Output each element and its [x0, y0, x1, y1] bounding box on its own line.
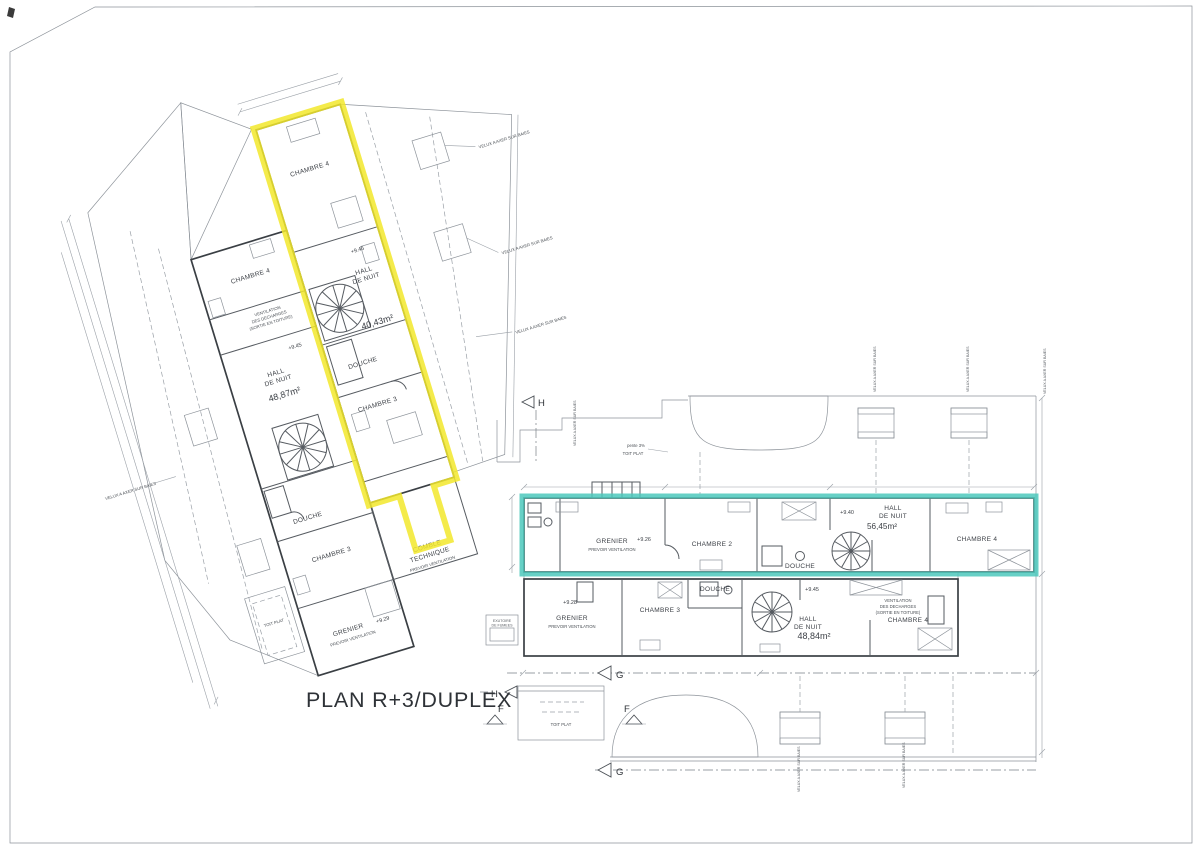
- grenier-bottom-label: GRENIER: [556, 615, 588, 622]
- hall-bottom-level: +9.45: [805, 587, 819, 593]
- grenier-a-level: +9.29: [376, 615, 391, 625]
- left-wing-plan: CHAMBRE 4 VENTILATION DES DECHARGES (SOR…: [1, 8, 664, 720]
- unit-b-spiral-stair: [310, 278, 370, 338]
- strip-bottom-x-box-3: [918, 628, 952, 650]
- level-a: +9.45: [288, 342, 303, 352]
- toit-plat-box-left: TOIT PLAT: [245, 587, 305, 664]
- page-title: PLAN R+3/DUPLEX: [306, 688, 512, 712]
- grenier-top-level: +9.26: [637, 537, 651, 543]
- exutoire-line2: DE FUMEES: [492, 624, 514, 628]
- roof-velux-windows: [127, 132, 548, 580]
- marker-g-bottom-label: G: [616, 767, 623, 778]
- chambre4-top-label: CHAMBRE 4: [957, 536, 998, 543]
- pente-label: pente 3%: [627, 443, 645, 448]
- marker-g-top-label: G: [616, 670, 623, 681]
- strip-bottom-spiral-stair: [752, 592, 792, 632]
- strip-bottom-x-box-1: [658, 582, 682, 598]
- hall-top-line2: DE NUIT: [879, 513, 907, 520]
- room-label-chambre4-b: CHAMBRE 4: [289, 160, 330, 179]
- grenier-bottom-level: +9.28: [563, 600, 577, 606]
- marker-f-right-label: F: [624, 704, 630, 715]
- unit-a-spiral-stair: [273, 417, 333, 477]
- velux-note-4: VELUX A AXER SUR BAIES: [104, 481, 156, 501]
- strip-top-x-box-2: [988, 550, 1030, 570]
- hall-a-area: 48,87m²: [267, 385, 302, 404]
- room-label-chambre3-b: CHAMBRE 3: [357, 396, 398, 415]
- velux-note-1: VELUX A AXER SUR BAIES: [478, 129, 530, 149]
- hall-bottom-area: 48,84m²: [797, 631, 830, 641]
- strip-top-x-box-1: [782, 502, 816, 520]
- chambre2-label: CHAMBRE 2: [692, 541, 733, 548]
- velux-note-top-2: VELUX A AXER SUR BAIES: [966, 346, 970, 392]
- right-wing-upper-roof: VELUX A AXER SUR BAIES VELUX A AXER SUR …: [497, 346, 1047, 762]
- teal-highlight-outline: [522, 496, 1036, 574]
- grenier-top-label: GRENIER: [596, 538, 628, 545]
- section-marker-h-top: H: [522, 396, 545, 462]
- velux-note-right: VELUX A AXER SUR BAIES: [1043, 348, 1047, 394]
- strip-bottom-x-box-2: [850, 580, 902, 595]
- room-label-douche-b: DOUCHE: [348, 356, 379, 372]
- exutoire-line1: EXUTOIRE: [493, 619, 512, 623]
- toit-plat-bottom-label: TOIT PLAT: [551, 722, 572, 727]
- skylight-box-1: [858, 408, 894, 438]
- toit-plat-box-bottom: TOIT PLAT: [518, 686, 604, 740]
- section-marker-f-right: F: [622, 704, 646, 724]
- hall-top-area: 56,45m²: [867, 522, 897, 531]
- section-marker-g-bottom: G: [598, 763, 623, 778]
- arched-roof-top: [690, 396, 828, 450]
- vent-bottom-3: (SORTIE EN TOITURE): [876, 610, 921, 615]
- velux-note-top-1: VELUX A AXER SUR BAIES: [873, 346, 877, 392]
- room-label-chambre4-a: CHAMBRE 4: [230, 267, 271, 286]
- vent-bottom-2: DES DECHARGES: [880, 604, 917, 609]
- douche-top-label: DOUCHE: [785, 563, 815, 570]
- section-marker-g-top: G: [598, 666, 623, 681]
- scan-speck: [7, 7, 15, 18]
- chambre4-bottom-label: CHAMBRE 4: [888, 617, 929, 624]
- right-wing-lower-roof: TOIT PLAT VELUX A AXER SUR BAIES VELUX A…: [480, 666, 1039, 792]
- chambre3-bottom-label: CHAMBRE 3: [640, 607, 681, 614]
- velux-note-bottom-1: VELUX A AXER SUR BAIES: [797, 746, 801, 792]
- strip-top-spiral-stair: [832, 532, 870, 570]
- toit-plat-left-label: TOIT PLAT: [263, 617, 285, 628]
- exutoire-box: EXUTOIRE DE FUMEES: [486, 615, 518, 645]
- scan-page-edges: [7, 6, 1192, 843]
- hall-top-line1: HALL: [884, 505, 902, 512]
- arched-roof-bottom: [612, 695, 758, 757]
- hall-bottom-line1: HALL: [799, 616, 817, 623]
- right-wing-plan: VELUX A AXER SUR BAIES VELUX A AXER SUR …: [480, 346, 1047, 792]
- hall-top-level: +9.40: [840, 510, 854, 516]
- grenier-bottom-note: PREVOIR VENTILATION: [548, 624, 595, 629]
- velux-note-bottom-2: VELUX A AXER SUR BAIES: [902, 742, 906, 788]
- room-label-chambre3-a: CHAMBRE 3: [311, 546, 352, 565]
- right-wing-strip-bottom: EXUTOIRE DE FUMEES +9.28 GRENIER PREVOIR…: [486, 579, 958, 656]
- velux-note-upperleft: VELUX A AXER SUR BAIES: [573, 400, 577, 446]
- skylight-box-2: [951, 408, 987, 438]
- velux-note-3: VELUX A AXER SUR BAIES: [515, 314, 567, 334]
- vent-bottom-1: VENTILATION: [884, 598, 911, 603]
- hall-bottom-line2: DE NUIT: [794, 624, 822, 631]
- grenier-top-note: PREVOIR VENTILATION: [588, 547, 635, 552]
- floor-plan-drawing: CHAMBRE 4 VENTILATION DES DECHARGES (SOR…: [0, 0, 1200, 849]
- left-wing-dimension-lines: [35, 27, 658, 712]
- skylight-box-3: [780, 712, 820, 744]
- douche-bottom-label: DOUCHE: [700, 586, 730, 593]
- marker-h-top-label: H: [538, 398, 545, 409]
- toit-plat-upper-label: TOIT PLAT: [623, 451, 644, 456]
- skylight-box-4: [885, 712, 925, 744]
